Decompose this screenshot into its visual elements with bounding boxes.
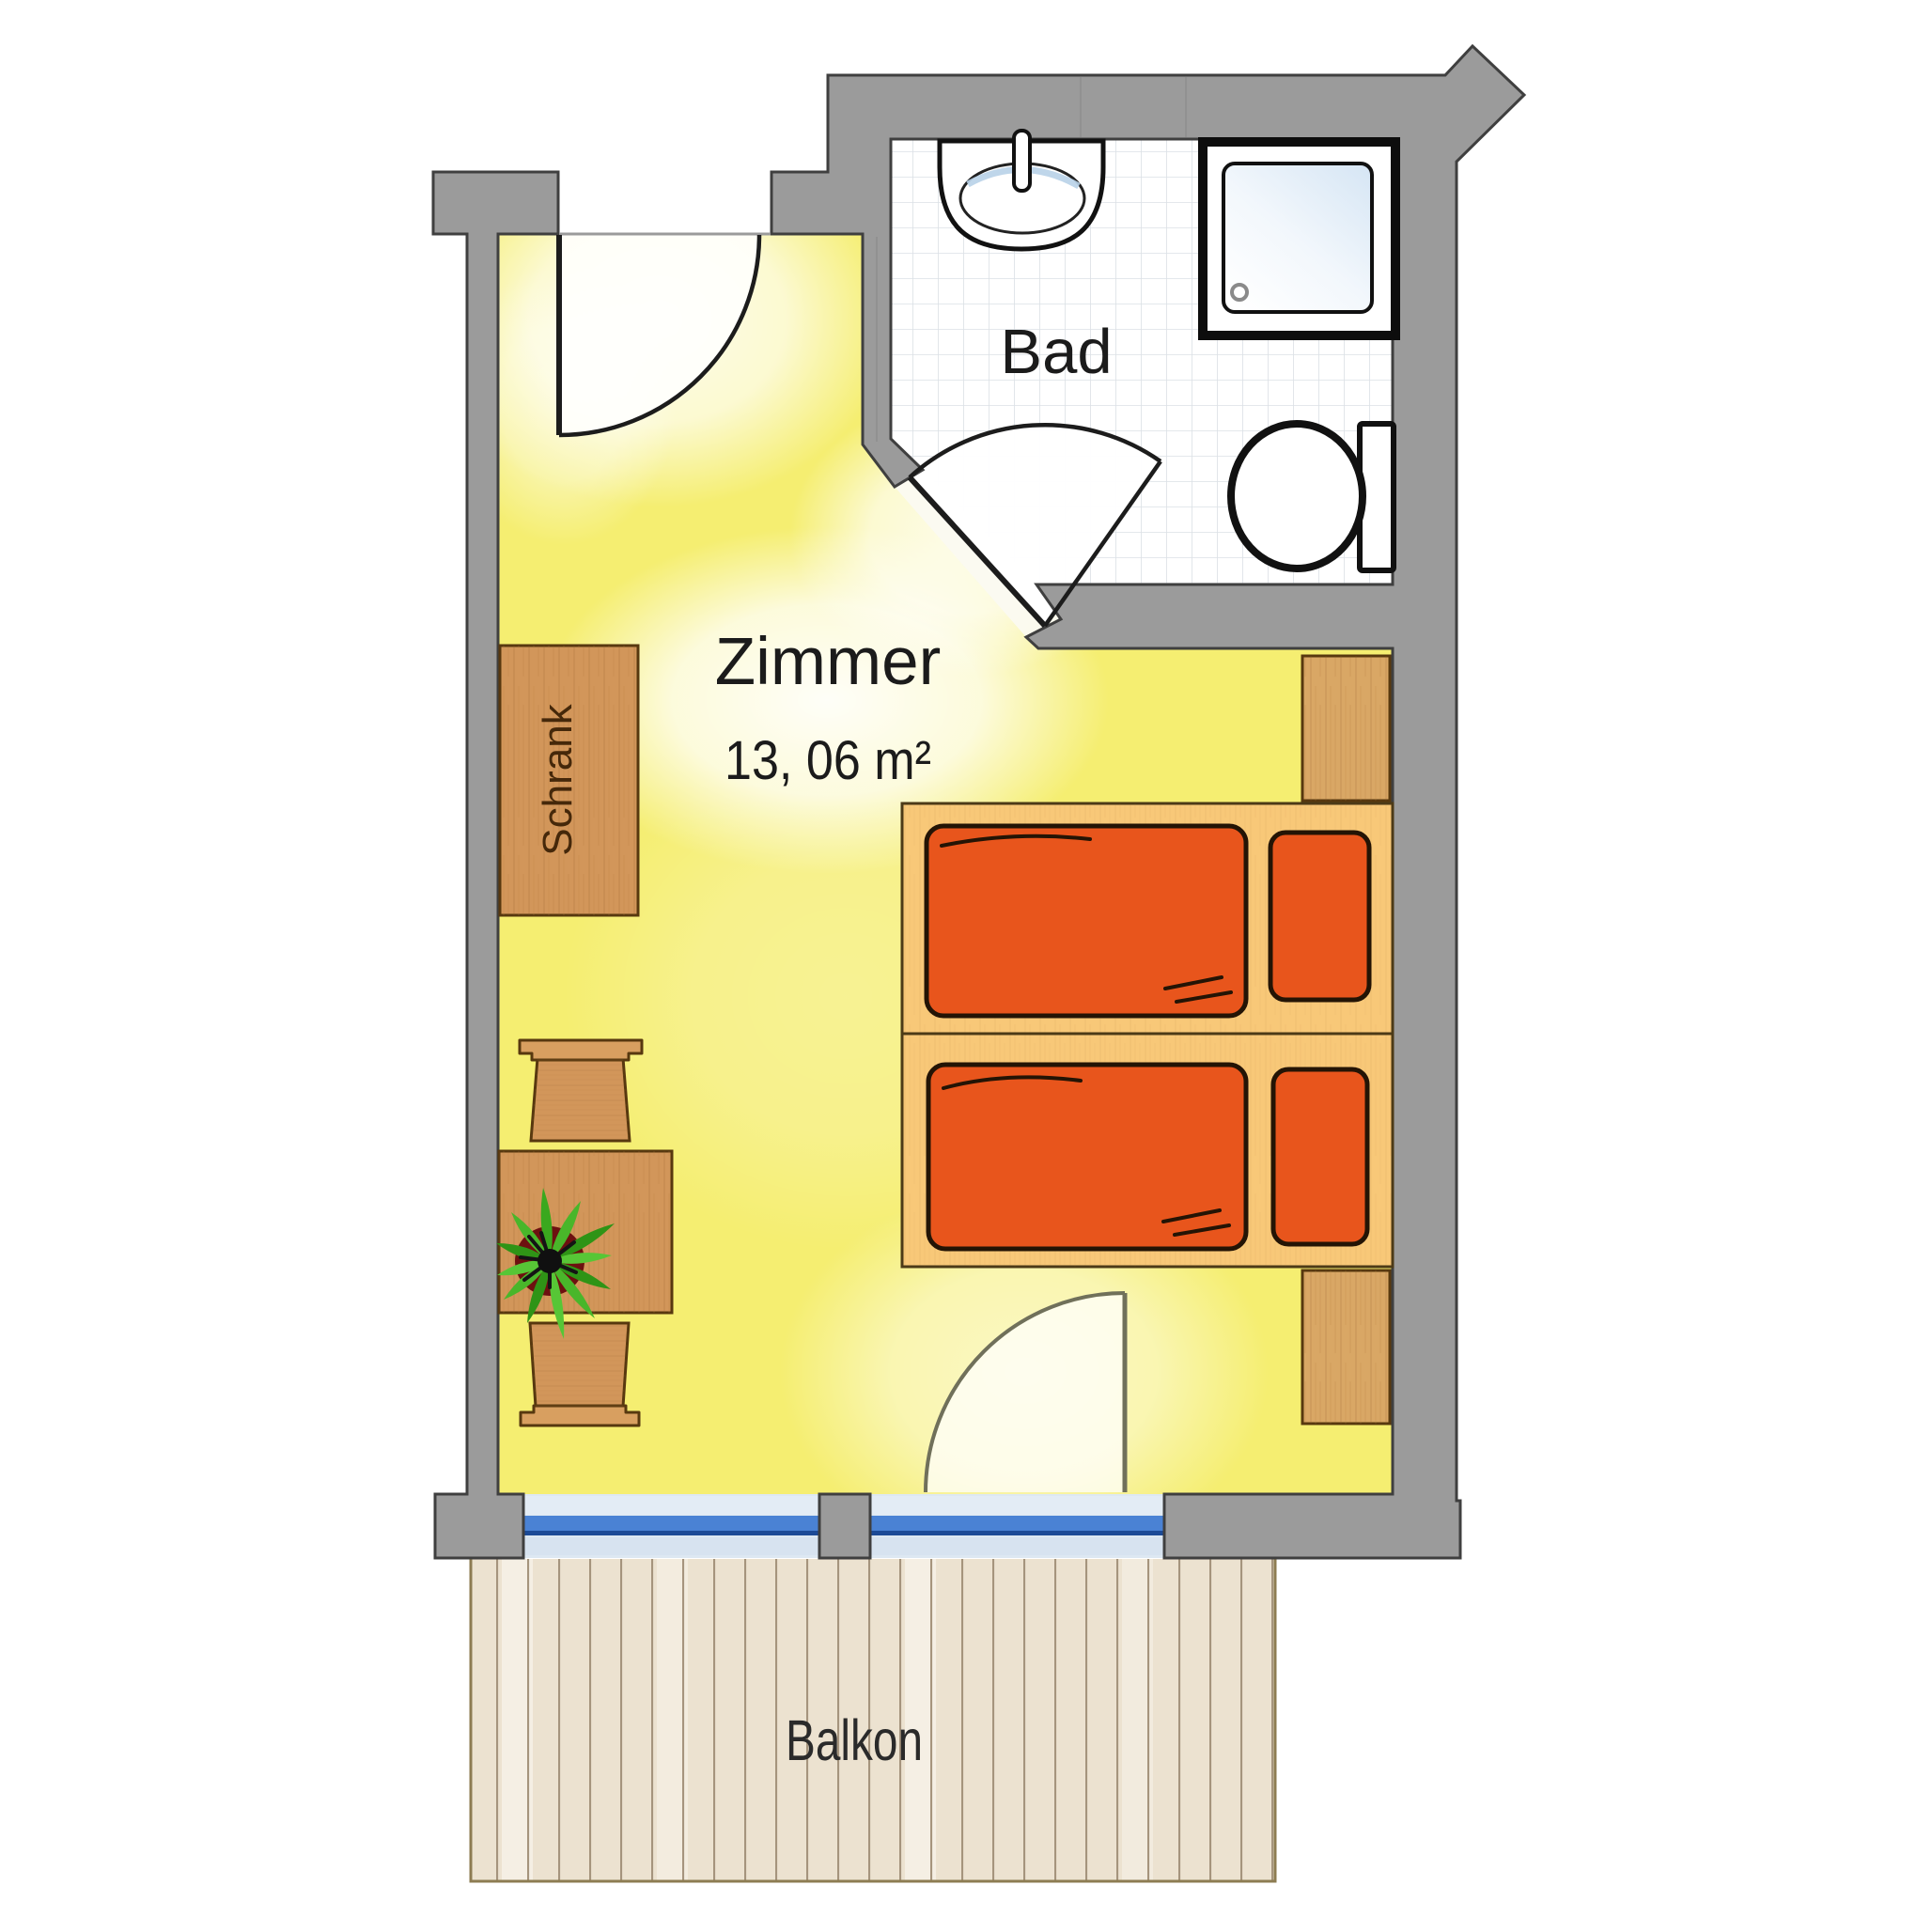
svg-text:13, 06 m²: 13, 06 m² xyxy=(724,730,931,791)
svg-text:Balkon: Balkon xyxy=(786,1708,923,1772)
svg-text:Schrank: Schrank xyxy=(535,703,581,855)
svg-text:Zimmer: Zimmer xyxy=(715,625,942,699)
svg-text:Bad: Bad xyxy=(1000,317,1112,387)
